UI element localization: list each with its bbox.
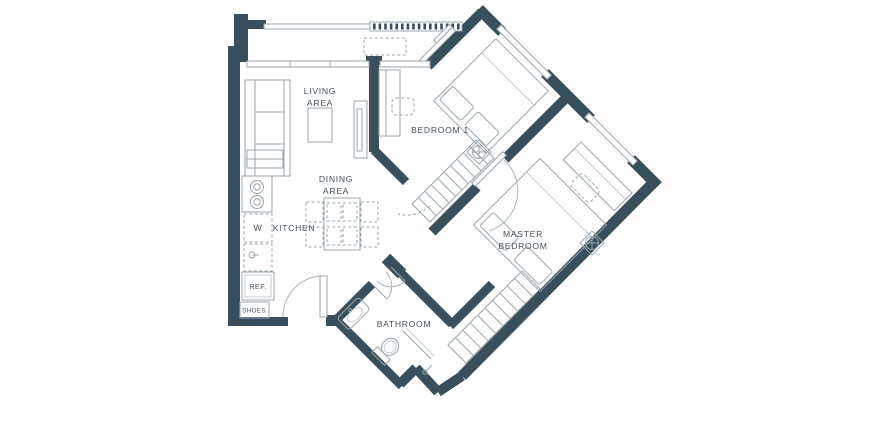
master-bed	[474, 159, 607, 292]
wall-bathroom-northwest	[336, 284, 372, 320]
bedroom1-chair	[392, 98, 414, 115]
master-desk	[554, 142, 632, 220]
dining-chair	[361, 202, 378, 222]
living-area-label-2: AREA	[307, 98, 333, 108]
entry-door-leaf	[320, 276, 327, 317]
wall-tip-a	[438, 376, 462, 392]
master-bedroom: MASTER BEDROOM	[448, 113, 637, 363]
tv-console	[354, 101, 367, 158]
wall-master-northwest-b	[432, 187, 477, 232]
entry-door-swing	[283, 276, 320, 317]
wall-balcony-left	[240, 20, 266, 29]
entry	[283, 276, 327, 317]
master-label-1: MASTER	[503, 229, 543, 239]
wall-hall-bedroom1	[374, 150, 406, 182]
wall-master-northwest-a	[505, 96, 568, 159]
bedroom1-window	[497, 25, 551, 79]
kitchen-sink-icon	[244, 244, 272, 271]
kitchen-label: KITCHEN	[273, 223, 316, 233]
bedroom1-window-west	[380, 61, 430, 67]
dining-area-label-2: AREA	[323, 186, 349, 196]
master-window	[585, 113, 637, 165]
balcony-railing	[264, 24, 370, 29]
pillow	[465, 112, 500, 147]
bathroom: BATHROOM	[337, 267, 434, 374]
shoes-label: SHOES	[242, 308, 266, 315]
seat-pad	[327, 203, 341, 221]
seat-pad	[343, 203, 357, 221]
living-window	[247, 61, 369, 67]
wall-southeast	[462, 180, 656, 376]
master-label-2: BEDROOM	[498, 241, 547, 251]
stove-icon	[242, 176, 272, 212]
refrigerator-label: REF.	[249, 282, 267, 291]
floor-plan-canvas: LIVING AREA W REF. SHOES	[0, 0, 890, 440]
refrigerator: REF.	[242, 272, 274, 300]
dining-area-label-1: DINING	[319, 174, 353, 184]
coffee-table	[308, 108, 332, 142]
shoe-cabinet: SHOES	[240, 302, 269, 318]
dining-chair	[306, 202, 323, 222]
pillow	[439, 86, 474, 121]
pillow	[514, 246, 553, 285]
tv-icon	[357, 109, 362, 151]
bedroom1-desk	[379, 70, 400, 136]
dining-table	[324, 198, 360, 250]
ac-unit-dashed	[364, 38, 406, 55]
bedroom1-label: BEDROOM 1	[411, 125, 469, 135]
wall-master-southwest	[450, 284, 492, 326]
bedroom1-door-swing	[398, 206, 430, 215]
seat-pad	[343, 227, 357, 245]
bathroom-label: BATHROOM	[377, 319, 432, 329]
master-sliding-door	[472, 152, 507, 187]
seat-pad	[327, 227, 341, 245]
living-area: LIVING AREA	[245, 80, 367, 176]
floor-plan: LIVING AREA W REF. SHOES	[0, 0, 890, 440]
wall-bathroom-southwest	[336, 320, 402, 386]
kitchen: W REF. SHOES KITCHEN	[240, 150, 315, 318]
washer-label: W	[253, 223, 262, 233]
wall-tv	[369, 62, 379, 152]
living-area-label-1: LIVING	[304, 86, 336, 96]
washer: W	[244, 214, 272, 242]
dining-chair	[361, 227, 378, 247]
wall-left	[228, 46, 240, 325]
wall-bathroom-northeast	[398, 270, 452, 324]
dining-area: DINING AREA	[306, 174, 378, 250]
kitchen-counter	[247, 150, 283, 168]
master-chair	[570, 172, 601, 203]
